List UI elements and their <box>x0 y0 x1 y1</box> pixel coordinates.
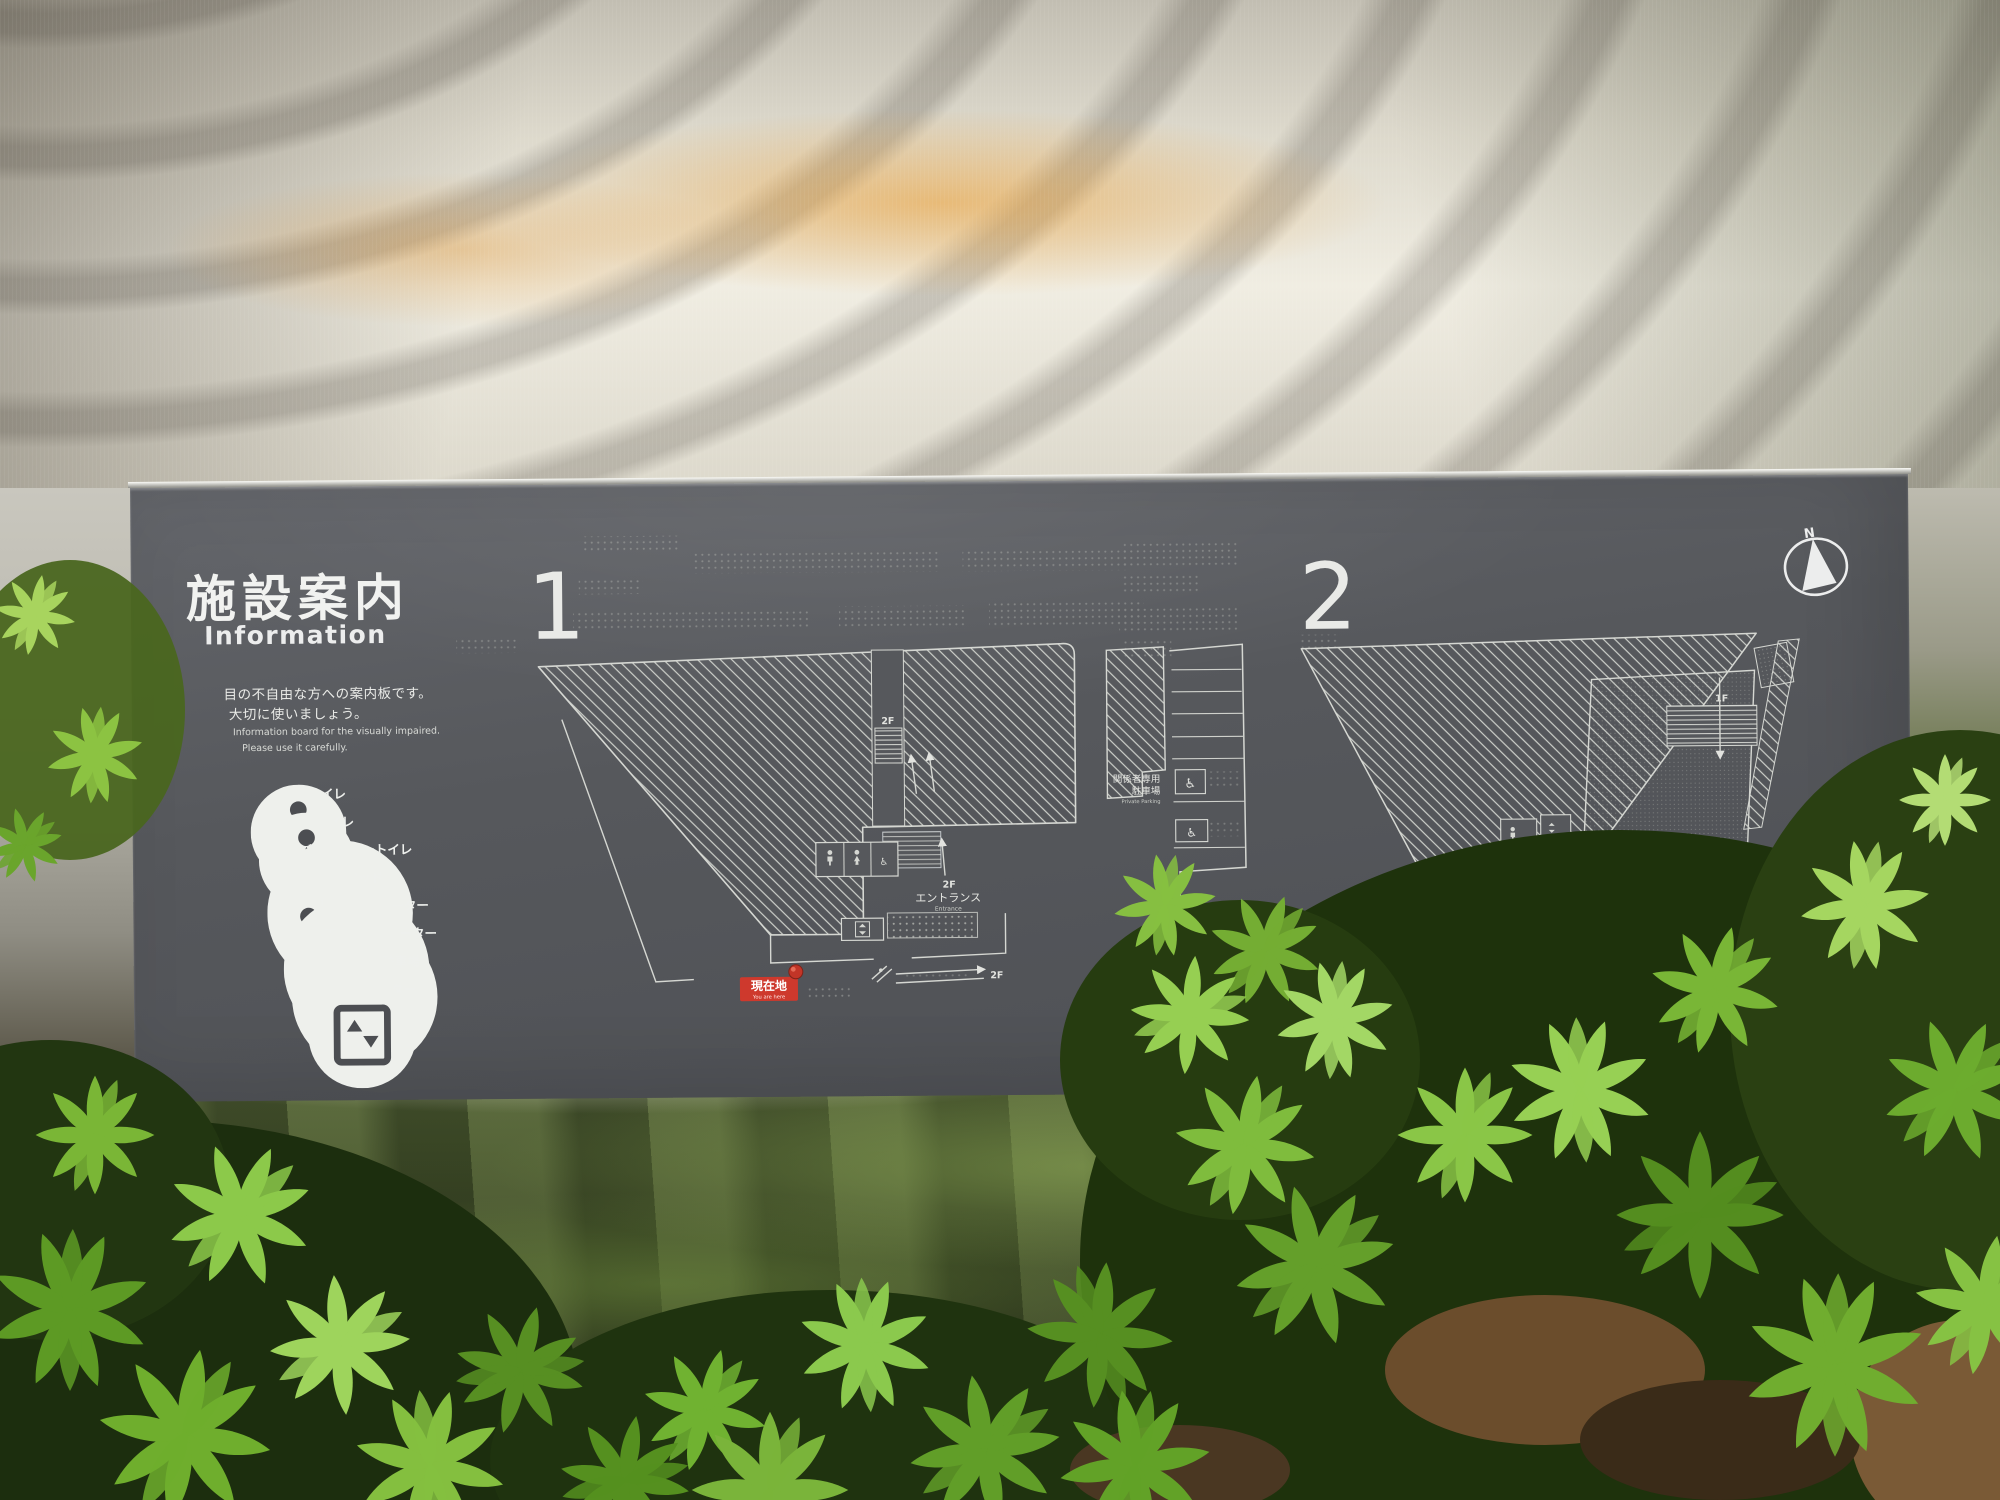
foreground-foliage <box>0 0 2000 1500</box>
